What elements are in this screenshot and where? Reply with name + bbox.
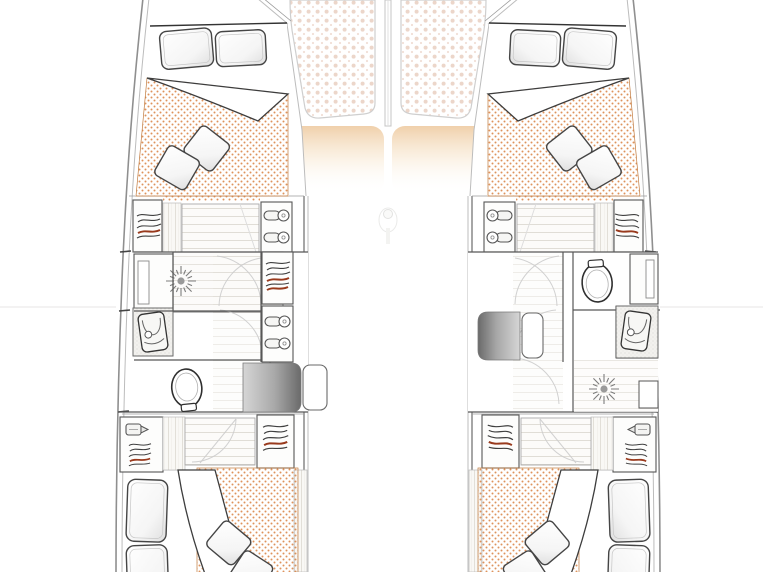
hull-starboard (468, 0, 660, 572)
mast-step-ghost (379, 208, 397, 244)
trampoline-left (290, 0, 375, 118)
hull-port-aft-lockers (120, 415, 294, 472)
trampoline-right (401, 0, 486, 118)
hull-port-bathroom (118, 252, 327, 412)
hull-starboard-aft-lockers (482, 415, 656, 472)
stair-landing (303, 365, 327, 410)
washbasin-icon (137, 311, 168, 352)
shower-drain-icon (166, 266, 196, 296)
hull-port (116, 0, 327, 572)
floor-plan-canvas (0, 0, 763, 572)
companionway-stairs (478, 312, 520, 360)
hull-port-aft-cabin (126, 468, 307, 572)
companionway-stairs (243, 363, 301, 412)
hull-port-forward-cabin (133, 23, 292, 252)
shower-drain-icon (589, 374, 619, 404)
washbasin-icon (620, 310, 651, 351)
hull-starboard-aft-cabin (469, 468, 650, 572)
stair-landing (522, 313, 543, 358)
hull-starboard-forward-cabin (484, 23, 643, 252)
hull-starboard-bathroom (468, 252, 660, 412)
floor-plan (0, 0, 763, 572)
